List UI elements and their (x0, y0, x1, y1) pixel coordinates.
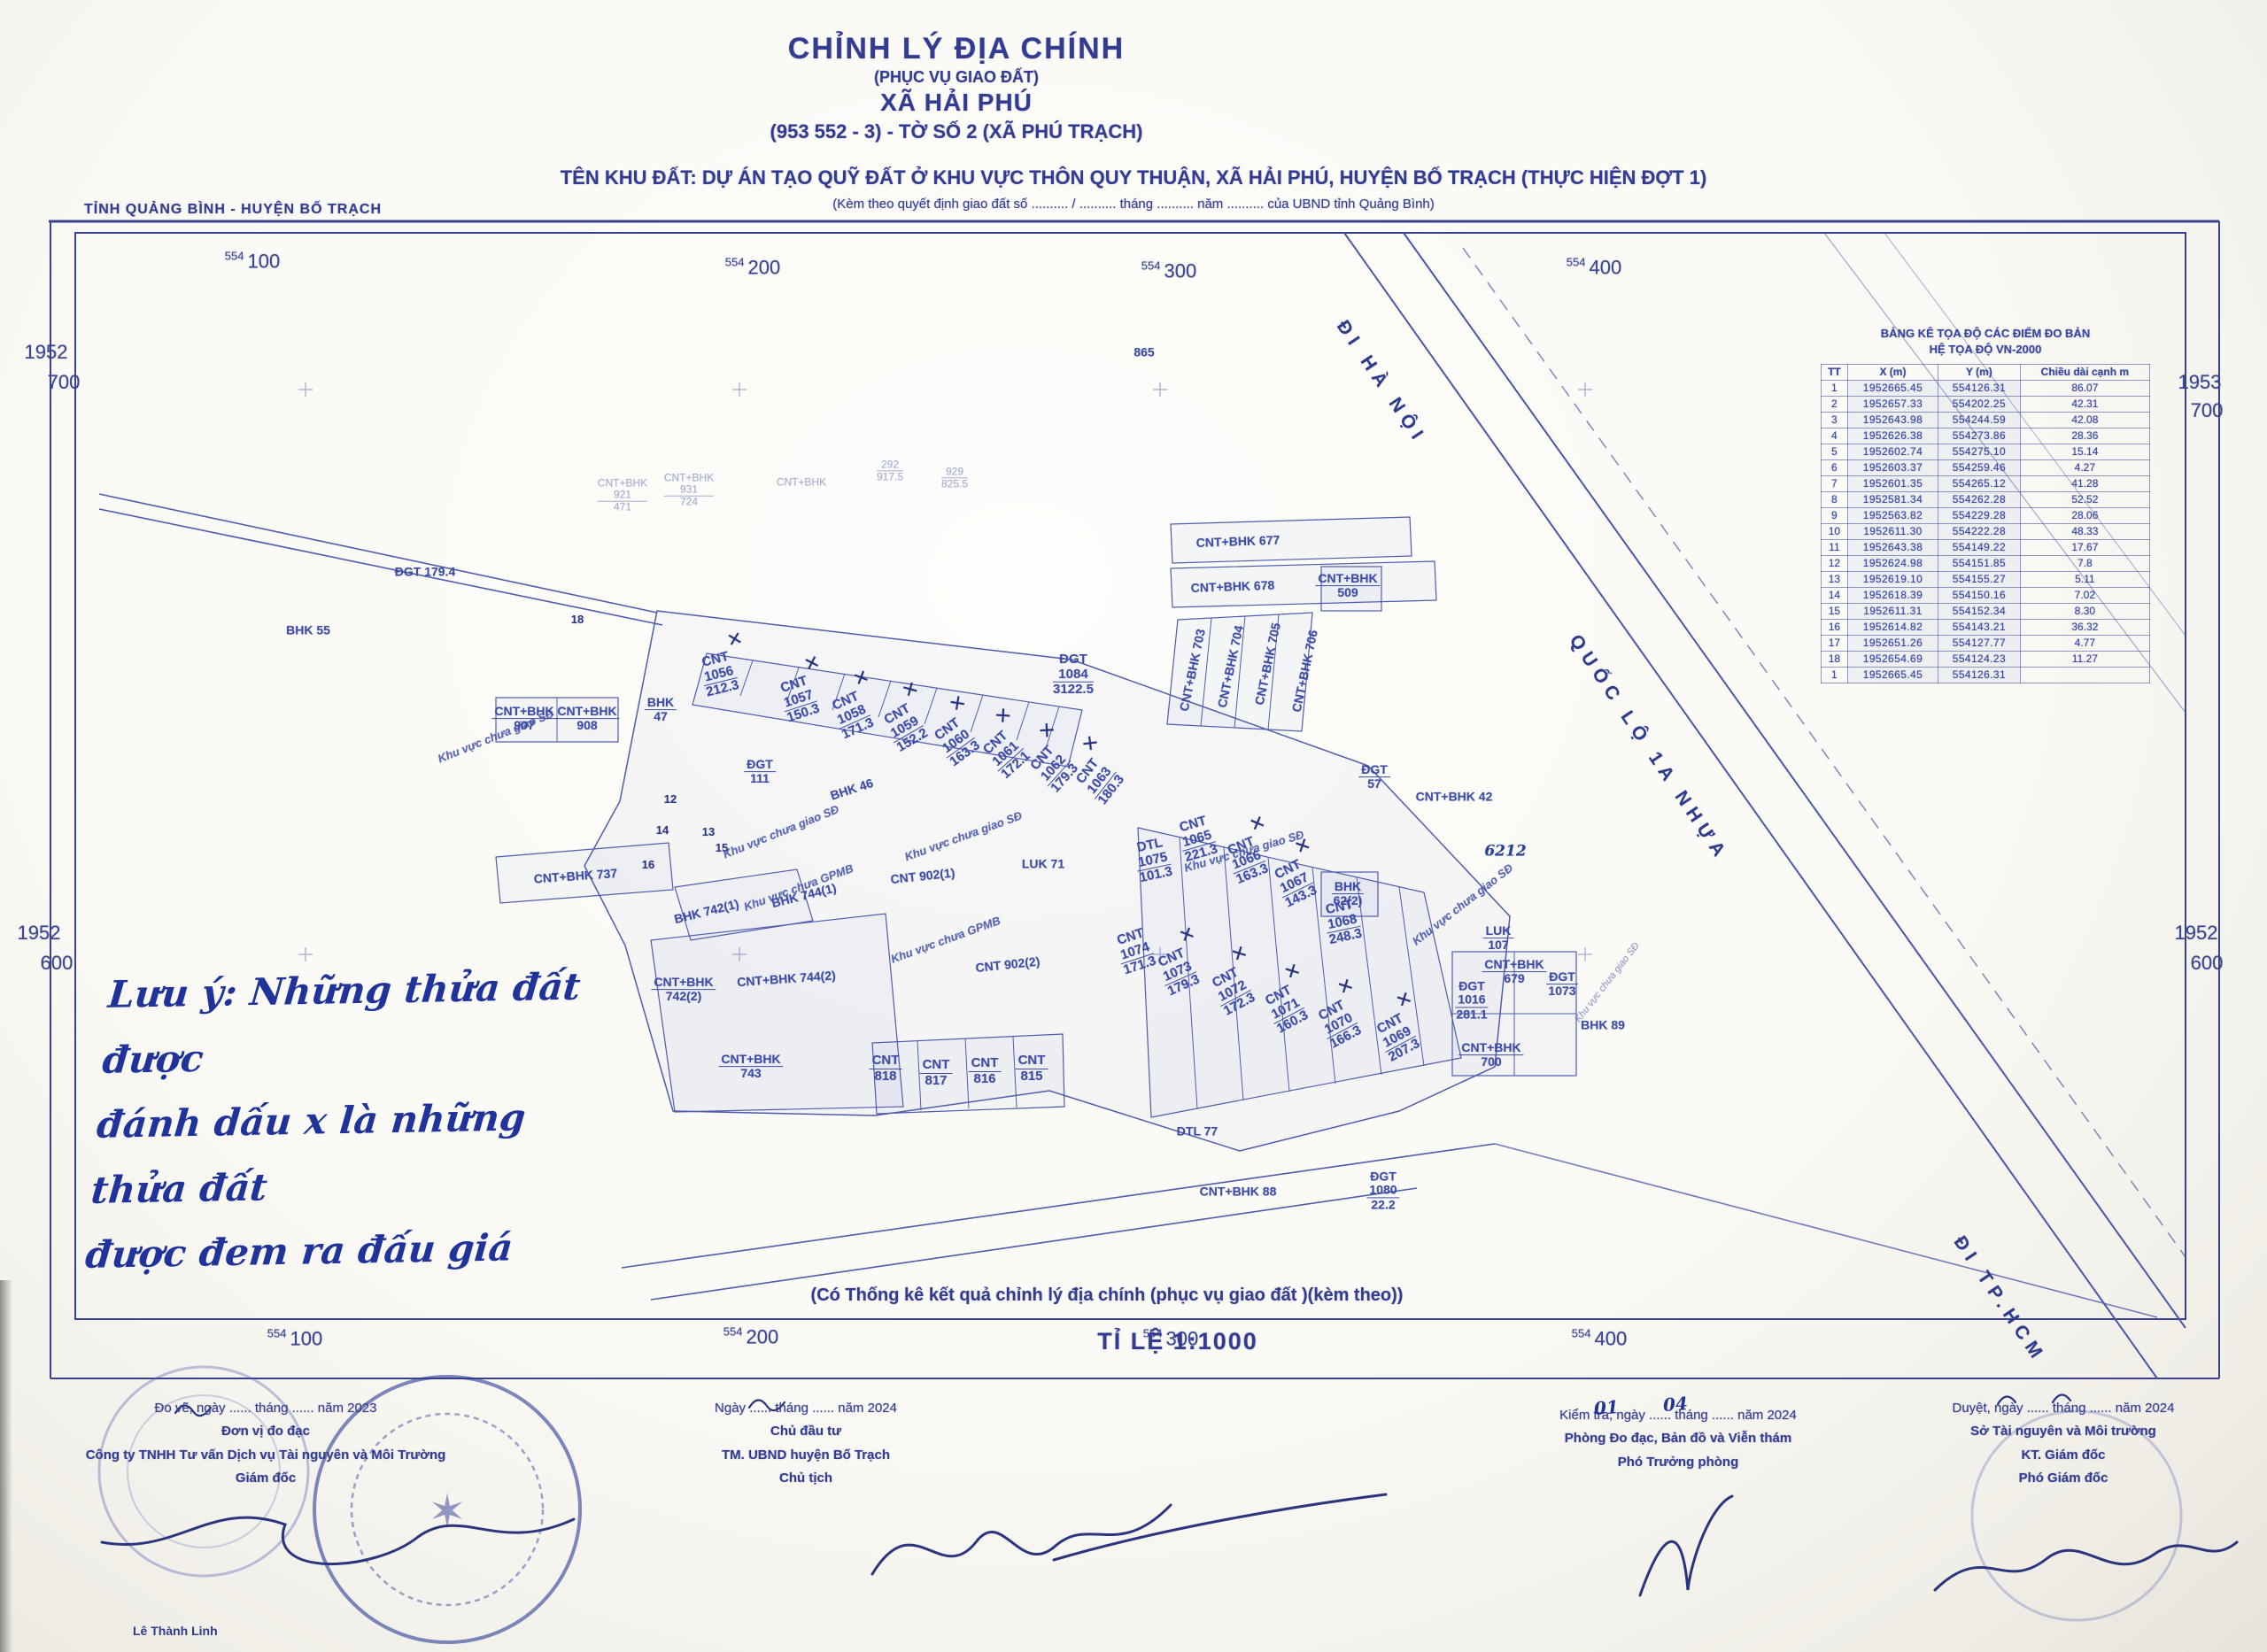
table-cell: 554126.31 (1938, 668, 2021, 683)
table-cell: 5.11 (2020, 572, 2149, 588)
grid-coordinate-label: 1952 (18, 922, 61, 945)
table-cell: 11 (1822, 540, 1848, 556)
grid-coordinate-label: 600 (41, 952, 74, 975)
table-cell: 4.77 (2020, 636, 2149, 652)
statistics-footnote: (Có Thống kê kết quả chỉnh lý địa chính … (620, 1285, 1594, 1306)
table-cell: 554149.22 (1938, 540, 2021, 556)
signature-block: Duyệt, ngày ...... tháng ...... năm 2024… (1877, 1397, 2249, 1490)
table-cell: 1952618.39 (1847, 588, 1938, 604)
table-cell: 41.28 (2020, 476, 2149, 492)
table-cell: 13 (1822, 572, 1848, 588)
signature-block-line: Chủ tịch (620, 1467, 992, 1490)
table-row: 141952618.39554150.167.02 (1822, 588, 2150, 604)
table-cell: 7.02 (2020, 588, 2149, 604)
table-row: 181952654.69554124.2311.27 (1822, 652, 2150, 668)
table-row: 131952619.10554155.275.11 (1822, 572, 2150, 588)
table-cell: 15.14 (2020, 444, 2149, 460)
table-cell: 16 (1822, 620, 1848, 636)
table-cell: 554143.21 (1938, 620, 2021, 636)
table-cell: 1952619.10 (1847, 572, 1938, 588)
grid-coordinate-label: 554100 (225, 250, 280, 274)
table-cell: 554152.34 (1938, 604, 2021, 620)
coordinate-table-subtitle: HỆ TỌA ĐỘ VN-2000 (1821, 342, 2150, 358)
signature-block-line: Phó Trưởng phòng (1488, 1451, 1869, 1474)
table-cell: 554259.46 (1938, 460, 2021, 476)
table-cell: 28.36 (2020, 428, 2149, 444)
table-cell: 554202.25 (1938, 397, 2021, 413)
table-row: 11952665.45554126.31 (1822, 668, 2150, 683)
coordinate-table-title: BẢNG KÊ TỌA ĐỘ CÁC ĐIỂM ĐO BẢN (1821, 326, 2150, 342)
table-row: 121952624.98554151.857.8 (1822, 556, 2150, 572)
table-cell: 1952624.98 (1847, 556, 1938, 572)
signature-block-line: Giám đốc (80, 1467, 452, 1490)
table-cell: 1952581.34 (1847, 492, 1938, 508)
table-cell: 554229.28 (1938, 508, 2021, 524)
grid-coordinate-label: 554300 (1141, 259, 1196, 283)
table-cell: 36.32 (2020, 620, 2149, 636)
signature-block: Ngày ...... tháng ...... năm 2024Chủ đầu… (620, 1397, 992, 1490)
table-cell: 1952643.98 (1847, 413, 1938, 428)
table-row: 91952563.82554229.2828.06 (1822, 508, 2150, 524)
table-cell: 554150.16 (1938, 588, 2021, 604)
table-cell: 1952626.38 (1847, 428, 1938, 444)
signature-block-line: TM. UBND huyện Bố Trạch (620, 1444, 992, 1467)
grid-coordinate-label: 1952 (2175, 922, 2218, 945)
table-cell: 7 (1822, 476, 1848, 492)
table-cell: 1952614.82 (1847, 620, 1938, 636)
table-cell: 10 (1822, 524, 1848, 540)
table-cell: 1952665.45 (1847, 668, 1938, 683)
table-cell: 554127.77 (1938, 636, 2021, 652)
table-cell: 42.31 (2020, 397, 2149, 413)
table-cell: 9 (1822, 508, 1848, 524)
table-cell: 42.08 (2020, 413, 2149, 428)
grid-coordinate-label: 700 (2191, 399, 2224, 422)
coordinate-table-header: X (m) (1847, 365, 1938, 381)
grid-coordinate-label: 700 (48, 371, 81, 394)
table-row: 111952643.38554149.2217.67 (1822, 540, 2150, 556)
table-row: 31952643.98554244.5942.08 (1822, 413, 2150, 428)
table-cell: 7.8 (2020, 556, 2149, 572)
table-cell: 554124.23 (1938, 652, 2021, 668)
table-cell: 1952602.74 (1847, 444, 1938, 460)
table-cell: 554155.27 (1938, 572, 2021, 588)
table-cell: 17 (1822, 636, 1848, 652)
coordinate-table: BẢNG KÊ TỌA ĐỘ CÁC ĐIỂM ĐO BẢN HỆ TỌA ĐỘ… (1821, 326, 2150, 683)
table-cell: 28.06 (2020, 508, 2149, 524)
table-row: 81952581.34554262.2852.52 (1822, 492, 2150, 508)
table-row: 71952601.35554265.1241.28 (1822, 476, 2150, 492)
table-cell: 1952563.82 (1847, 508, 1938, 524)
note-line: được đem ra đấu giá (82, 1214, 584, 1287)
scanned-cadastral-map-sheet: CHỈNH LÝ ĐỊA CHÍNH (PHỤC VỤ GIAO ĐẤT) XÃ… (0, 0, 2267, 1652)
signature-block-line: Đơn vị đo đạc (80, 1420, 452, 1443)
signature-block-line: Chủ đầu tư (620, 1420, 992, 1443)
grid-coordinate-label: 554400 (1572, 1327, 1627, 1351)
handwritten-date: 01 (1593, 1396, 1619, 1419)
table-row: 151952611.31554152.348.30 (1822, 604, 2150, 620)
grid-coordinate-label: 554100 (267, 1327, 322, 1351)
grid-coordinate-label: 554200 (725, 256, 780, 280)
coordinate-table-header: TT (1822, 365, 1848, 381)
table-cell: 86.07 (2020, 381, 2149, 397)
signature-block: Đo vẽ, ngày ...... tháng ...... năm 2023… (80, 1397, 452, 1490)
note-line: Lưu ý: Những thửa đất được (100, 953, 608, 1092)
table-cell: 554273.86 (1938, 428, 2021, 444)
table-cell: 1952611.30 (1847, 524, 1938, 540)
table-cell: 3 (1822, 413, 1848, 428)
table-cell: 6 (1822, 460, 1848, 476)
table-cell: 1952654.69 (1847, 652, 1938, 668)
table-cell: 1952665.45 (1847, 381, 1938, 397)
table-cell: 14 (1822, 588, 1848, 604)
table-cell: 1952657.33 (1847, 397, 1938, 413)
table-row: 61952603.37554259.464.27 (1822, 460, 2150, 476)
signature-block-line: Phòng Đo đạc, Bản đồ và Viễn thám (1488, 1427, 1869, 1450)
note-line: đánh dấu x là những thửa đất (89, 1084, 597, 1223)
grid-coordinate-label: 600 (2191, 952, 2224, 975)
signature-block-line: Đo vẽ, ngày ...... tháng ...... năm 2023 (80, 1397, 452, 1420)
scale-label: TỈ LỆ 1:1000 (1045, 1328, 1311, 1355)
grid-coordinate-label: 1953 (2178, 371, 2222, 394)
signature-block-line: Sở Tài nguyên và Môi trường (1877, 1420, 2249, 1443)
table-row: 41952626.38554273.8628.36 (1822, 428, 2150, 444)
signature-block-line: KT. Giám đốc (1877, 1444, 2249, 1467)
handwritten-note: Lưu ý: Những thửa đất được đánh dấu x là… (82, 953, 607, 1287)
table-cell: 2 (1822, 397, 1848, 413)
table-cell: 11.27 (2020, 652, 2149, 668)
table-cell: 554262.28 (1938, 492, 2021, 508)
grid-coordinate-label: 554400 (1567, 256, 1621, 280)
signature-block-line: Ngày ...... tháng ...... năm 2024 (620, 1397, 992, 1420)
table-cell: 4.27 (2020, 460, 2149, 476)
coordinate-table-header-row: TTX (m)Y (m)Chiều dài cạnh m (1822, 365, 2150, 381)
table-cell: 554244.59 (1938, 413, 2021, 428)
table-cell: 52.52 (2020, 492, 2149, 508)
table-cell: 48.33 (2020, 524, 2149, 540)
table-cell: 8.30 (2020, 604, 2149, 620)
table-cell: 554151.85 (1938, 556, 2021, 572)
coordinate-table-header: Chiều dài cạnh m (2020, 365, 2149, 381)
signature-block-line: Phó Giám đốc (1877, 1467, 2249, 1490)
table-row: 101952611.30554222.2848.33 (1822, 524, 2150, 540)
signature-block-line: Duyệt, ngày ...... tháng ...... năm 2024 (1877, 1397, 2249, 1420)
table-row: 21952657.33554202.2542.31 (1822, 397, 2150, 413)
surveyor-name: Lê Thành Linh (133, 1624, 218, 1638)
table-cell: 1 (1822, 668, 1848, 683)
table-cell: 554275.10 (1938, 444, 2021, 460)
table-cell: 1952611.31 (1847, 604, 1938, 620)
table-cell (2020, 668, 2149, 683)
table-row: 171952651.26554127.774.77 (1822, 636, 2150, 652)
table-cell: 17.67 (2020, 540, 2149, 556)
table-cell: 554126.31 (1938, 381, 2021, 397)
table-row: 161952614.82554143.2136.32 (1822, 620, 2150, 636)
table-cell: 4 (1822, 428, 1848, 444)
table-cell: 15 (1822, 604, 1848, 620)
table-cell: 1952643.38 (1847, 540, 1938, 556)
table-cell: 554222.28 (1938, 524, 2021, 540)
table-cell: 18 (1822, 652, 1848, 668)
table-row: 11952665.45554126.3186.07 (1822, 381, 2150, 397)
table-cell: 12 (1822, 556, 1848, 572)
table-cell: 1952651.26 (1847, 636, 1938, 652)
table-cell: 8 (1822, 492, 1848, 508)
table-cell: 1952603.37 (1847, 460, 1938, 476)
coordinate-table-header: Y (m) (1938, 365, 2021, 381)
table-row: 51952602.74554275.1015.14 (1822, 444, 2150, 460)
table-cell: 1952601.35 (1847, 476, 1938, 492)
table-cell: 554265.12 (1938, 476, 2021, 492)
handwritten-date: 04 (1662, 1393, 1688, 1416)
grid-coordinate-label: 1952 (25, 341, 68, 364)
table-cell: 5 (1822, 444, 1848, 460)
signature-block-line: Công ty TNHH Tư vấn Dịch vụ Tài nguyên v… (80, 1444, 452, 1467)
grid-coordinate-label: 554200 (723, 1325, 778, 1349)
table-cell: 1 (1822, 381, 1848, 397)
